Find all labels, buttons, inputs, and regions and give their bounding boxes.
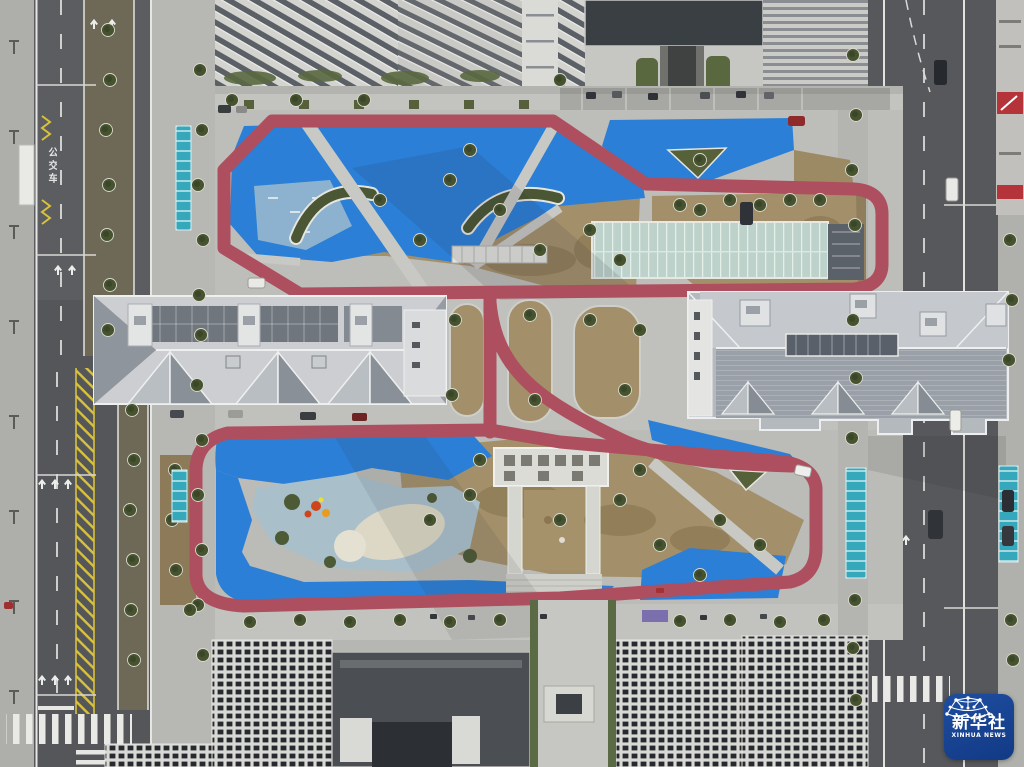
roof-pillar: [452, 716, 480, 764]
tower-entrance: [372, 722, 452, 767]
aerial-photo: [0, 0, 1024, 767]
red-banner: [997, 185, 1023, 199]
central-axis-walkway: [530, 600, 616, 767]
road-median-chevron: [76, 368, 94, 714]
greenhouse: [592, 222, 864, 280]
red-car: [788, 116, 805, 126]
glass-atrium: [786, 334, 898, 356]
dark-flat-roof: [585, 0, 763, 46]
roof-pillar: [340, 718, 372, 762]
xinhua-news-watermark: 新华社 XINHUA NEWS: [944, 694, 1014, 760]
bus-lane-road-text: 公交车: [44, 147, 58, 186]
right-building-wall: [996, 0, 1024, 215]
crosswalk-right: [872, 676, 950, 702]
aerial-photo-scene: 公交车 新华社 XINHUA NEWS: [0, 0, 1024, 767]
watermark-en-text: XINHUA NEWS: [952, 733, 1007, 739]
network-globe-icon: [944, 694, 992, 720]
purple-canopy: [642, 610, 668, 622]
bus-shelter-roof: [19, 145, 34, 205]
top-apartment-buildings: [215, 0, 903, 122]
kindergarten-building: [94, 296, 446, 404]
building-corner: [105, 744, 212, 767]
